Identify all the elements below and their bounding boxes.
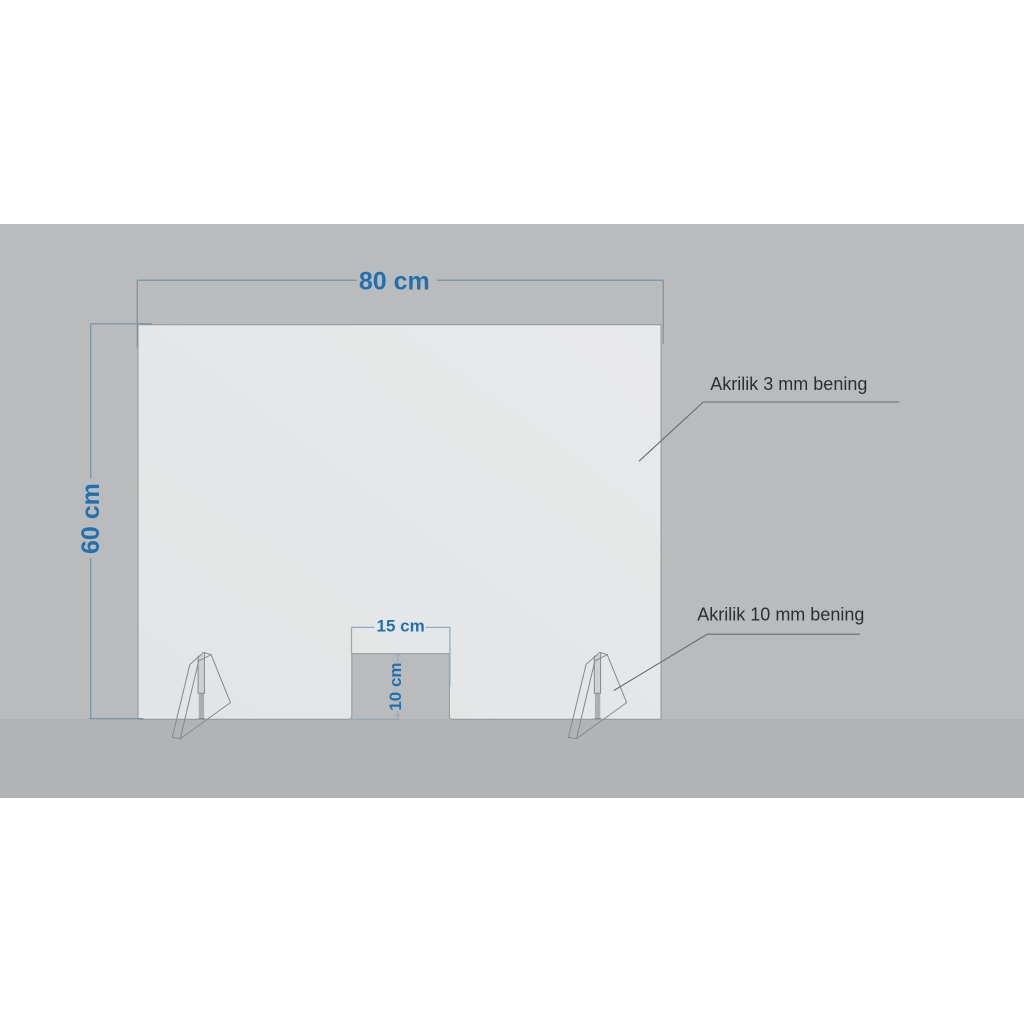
svg-text:15 cm: 15 cm [376, 616, 424, 635]
svg-text:60 cm: 60 cm [77, 483, 105, 554]
svg-text:10 cm: 10 cm [386, 662, 405, 710]
svg-text:Akrilik 10 mm bening: Akrilik 10 mm bening [697, 604, 864, 624]
svg-text:Akrilik 3 mm bening: Akrilik 3 mm bening [710, 374, 867, 394]
svg-text:80 cm: 80 cm [359, 268, 430, 296]
